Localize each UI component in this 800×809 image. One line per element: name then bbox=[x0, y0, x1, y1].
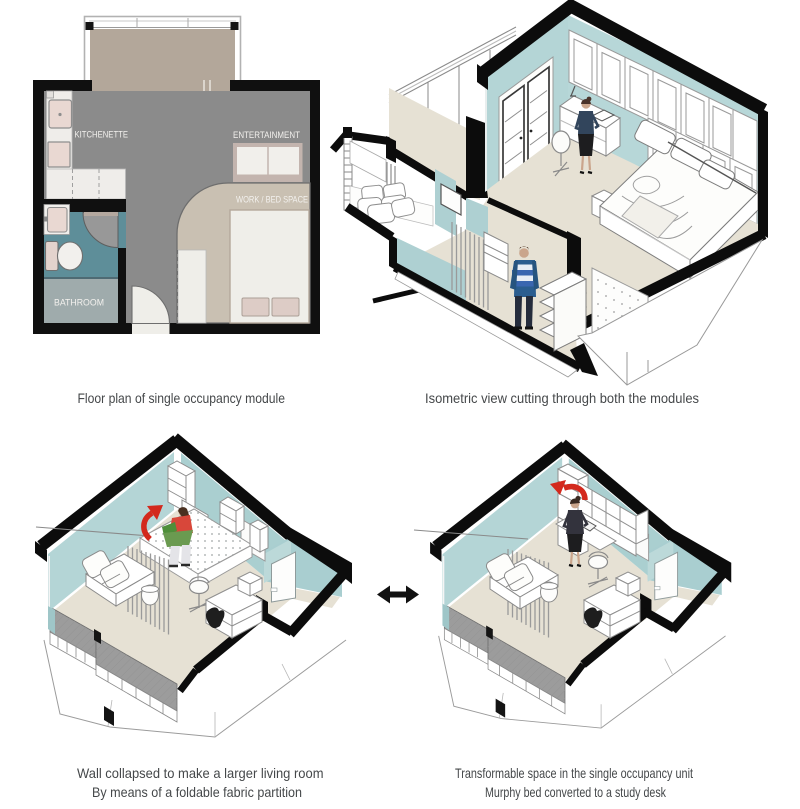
svg-text:BATHROOM: BATHROOM bbox=[54, 298, 104, 308]
svg-text:WORK / BED SPACE: WORK / BED SPACE bbox=[236, 195, 308, 205]
svg-text:Floor plan of single occupancy: Floor plan of single occupancy module bbox=[78, 390, 286, 406]
svg-text:Murphy bed converted to a stud: Murphy bed converted to a study desk bbox=[485, 784, 667, 800]
svg-text:Transformable space in the sin: Transformable space in the single occupa… bbox=[455, 765, 693, 781]
svg-text:By means of a foldable fabric: By means of a foldable fabric partition bbox=[92, 784, 302, 800]
svg-text:KITCHENETTE: KITCHENETTE bbox=[75, 130, 129, 140]
svg-text:Wall collapsed to make a large: Wall collapsed to make a larger living r… bbox=[77, 765, 324, 781]
svg-text:Isometric view cutting through: Isometric view cutting through both the … bbox=[425, 390, 699, 406]
svg-text:ENTERTAINMENT: ENTERTAINMENT bbox=[233, 130, 300, 140]
